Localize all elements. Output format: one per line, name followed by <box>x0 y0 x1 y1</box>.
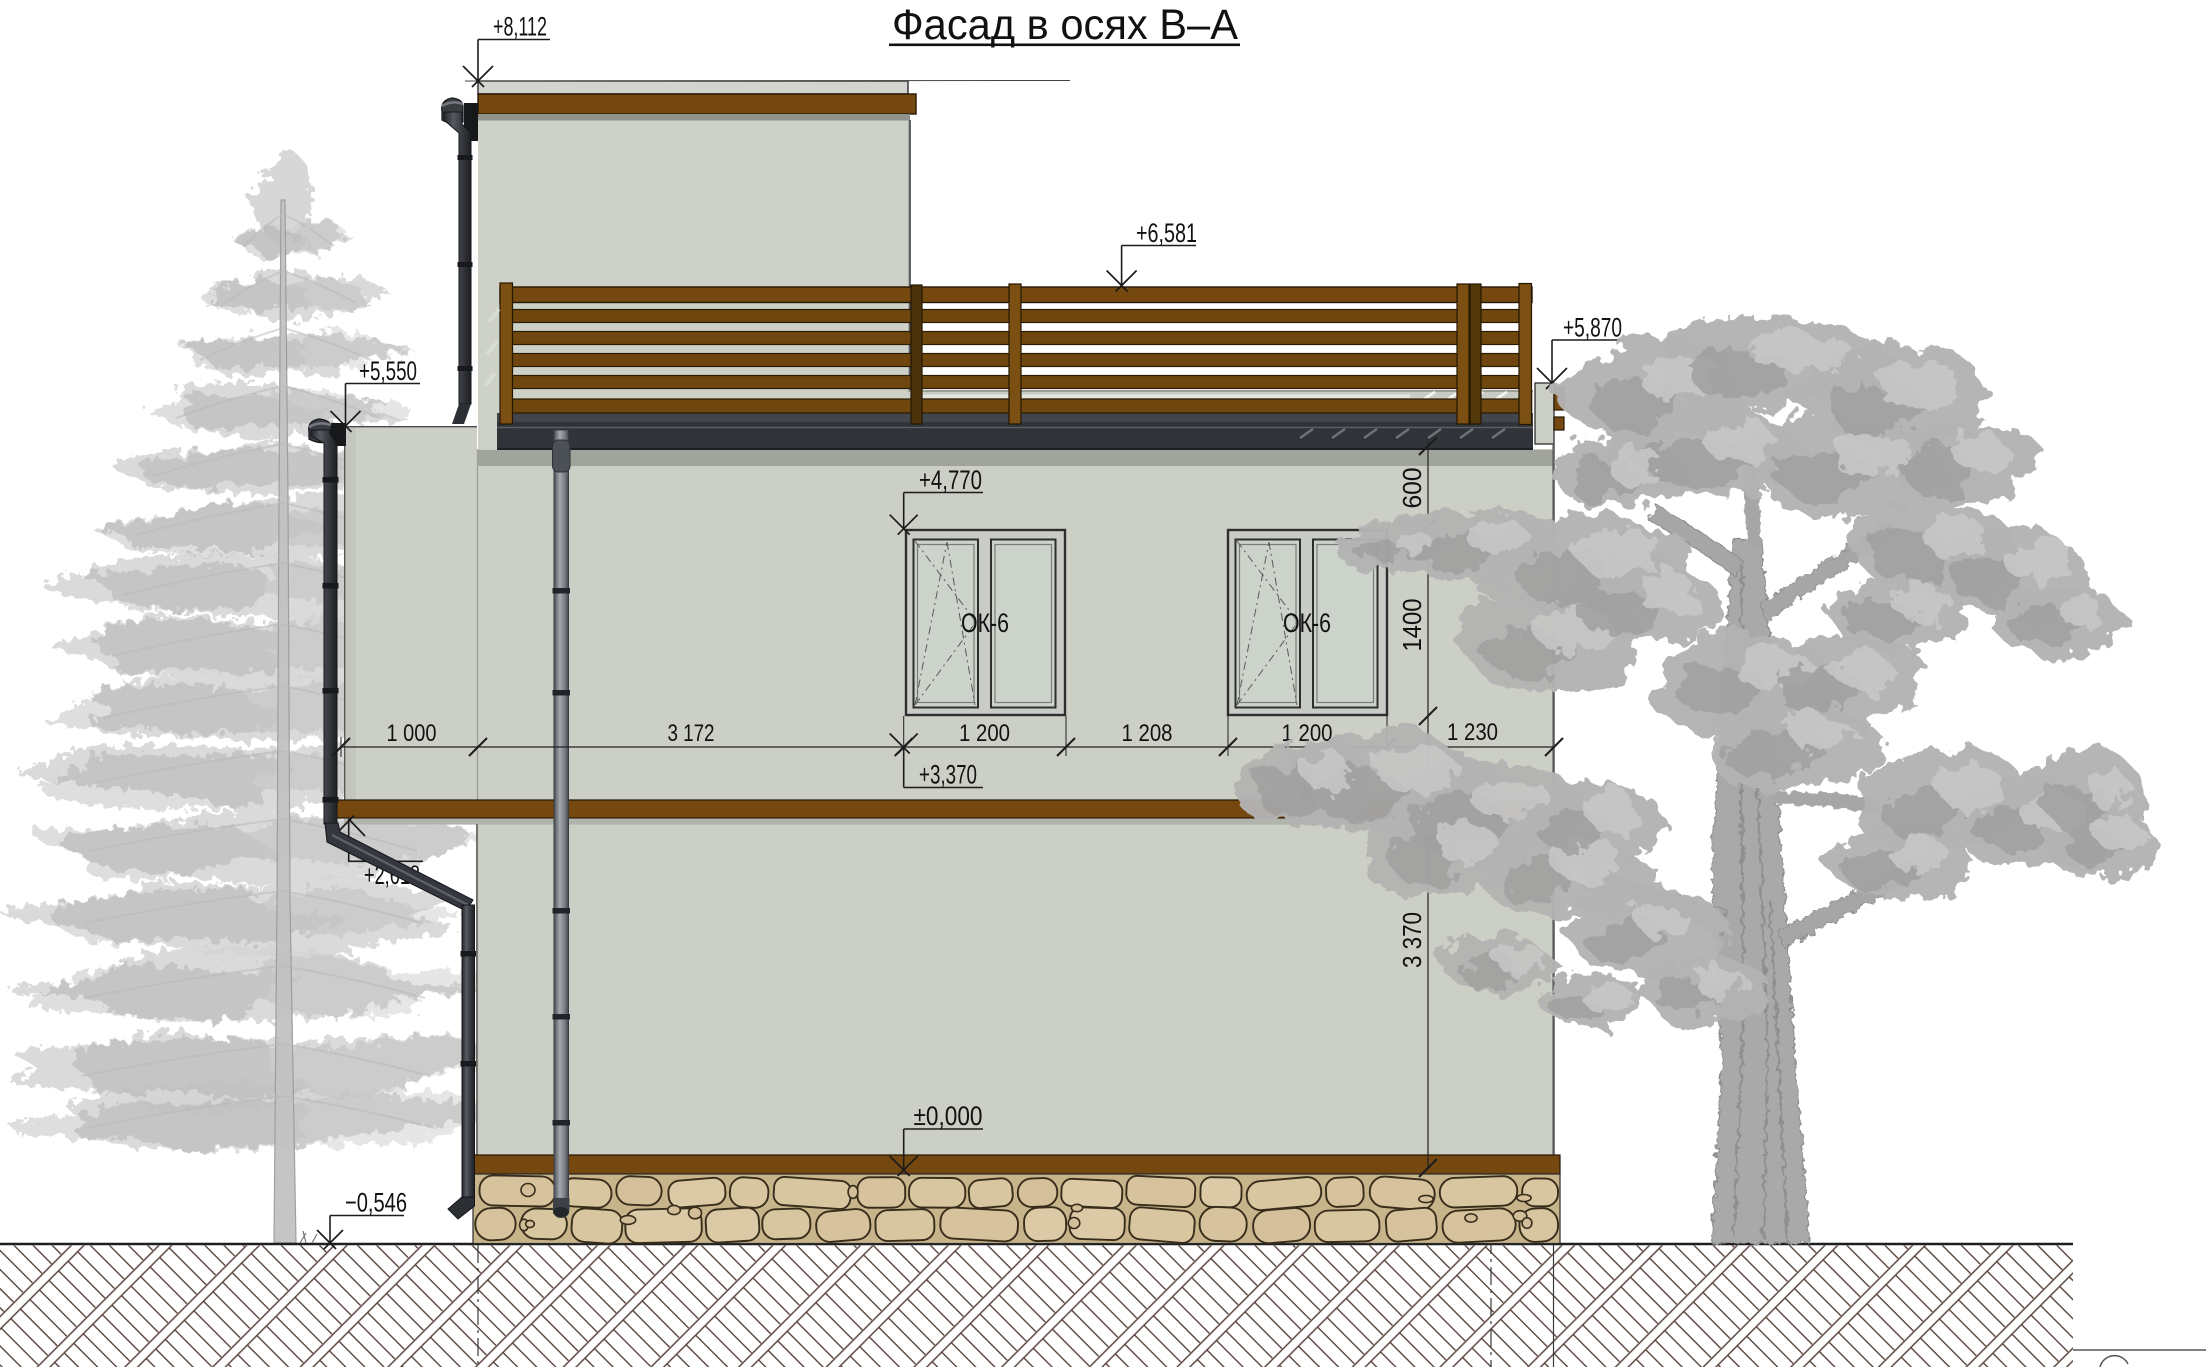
svg-text:Фасад в осях В–А: Фасад в осях В–А <box>892 1 1238 49</box>
svg-text:+5,870: +5,870 <box>1563 313 1622 343</box>
svg-text:+6,581: +6,581 <box>1136 218 1197 248</box>
svg-text:1 000: 1 000 <box>387 720 437 747</box>
svg-text:ОК-6: ОК-6 <box>1283 608 1331 638</box>
svg-text:3 172: 3 172 <box>668 720 715 747</box>
svg-text:+8,112: +8,112 <box>493 12 547 42</box>
svg-text:+4,770: +4,770 <box>919 465 982 495</box>
svg-text:±0,000: ±0,000 <box>914 1101 983 1131</box>
svg-text:+3,370: +3,370 <box>919 760 977 790</box>
svg-text:1400: 1400 <box>1397 599 1427 652</box>
svg-text:1 200: 1 200 <box>959 720 1010 747</box>
svg-text:3 370: 3 370 <box>1397 912 1427 968</box>
svg-text:−0,546: −0,546 <box>345 1188 407 1218</box>
svg-text:1 230: 1 230 <box>1447 719 1498 746</box>
svg-text:600: 600 <box>1397 468 1427 509</box>
svg-text:ОК-6: ОК-6 <box>961 608 1009 638</box>
svg-text:+5,550: +5,550 <box>359 356 417 386</box>
svg-text:1 208: 1 208 <box>1122 720 1173 747</box>
